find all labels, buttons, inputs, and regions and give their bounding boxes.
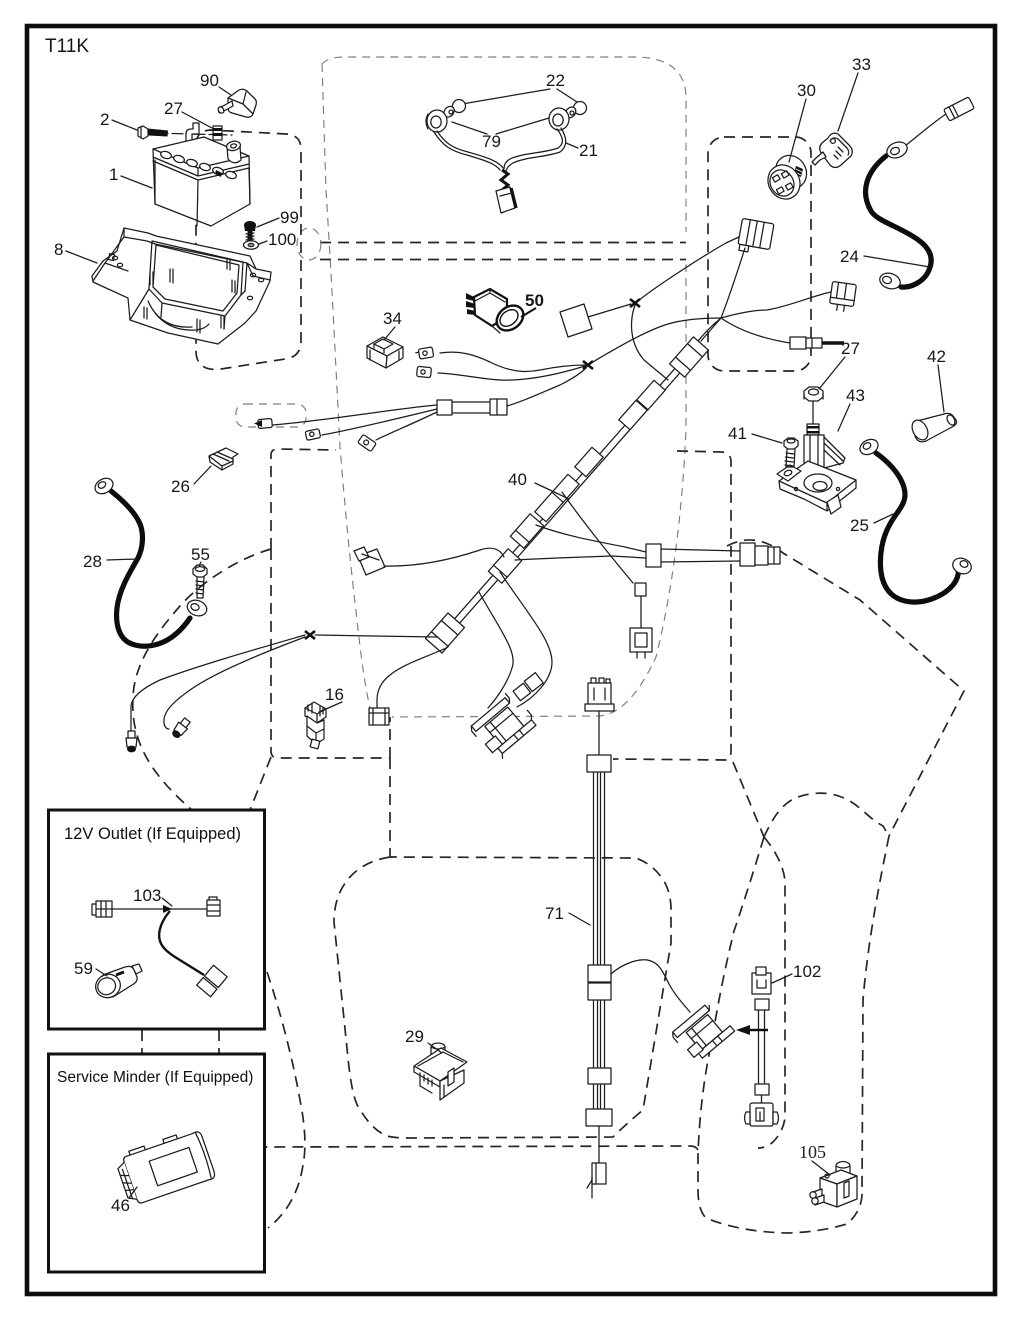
svg-text:8: 8 [54, 240, 63, 259]
svg-text:42: 42 [927, 347, 946, 366]
svg-text:90: 90 [200, 71, 219, 90]
svg-text:102: 102 [793, 962, 821, 981]
svg-text:24: 24 [840, 247, 859, 266]
svg-text:22: 22 [546, 71, 565, 90]
svg-text:34: 34 [383, 309, 402, 328]
svg-text:28: 28 [83, 552, 102, 571]
svg-text:99: 99 [280, 208, 299, 227]
svg-text:25: 25 [850, 516, 869, 535]
svg-text:27: 27 [164, 99, 183, 118]
svg-text:105: 105 [799, 1142, 826, 1162]
svg-text:79: 79 [482, 132, 501, 151]
svg-text:71: 71 [545, 904, 564, 923]
svg-text:59: 59 [74, 959, 93, 978]
svg-text:55: 55 [191, 545, 210, 564]
svg-text:T11K: T11K [45, 36, 89, 57]
svg-text:30: 30 [797, 81, 816, 100]
svg-text:41: 41 [728, 424, 747, 443]
svg-text:46: 46 [111, 1196, 130, 1215]
svg-text:2: 2 [100, 110, 109, 129]
svg-text:16: 16 [325, 685, 344, 704]
svg-text:33: 33 [852, 55, 871, 74]
svg-text:21: 21 [579, 141, 598, 160]
svg-text:103: 103 [133, 886, 161, 905]
svg-text:26: 26 [171, 477, 190, 496]
svg-text:12V Outlet (If Equipped): 12V Outlet (If Equipped) [64, 825, 241, 843]
svg-text:40: 40 [508, 470, 527, 489]
svg-text:50: 50 [525, 291, 544, 310]
svg-text:43: 43 [846, 386, 865, 405]
svg-text:100: 100 [268, 230, 296, 249]
svg-text:29: 29 [405, 1027, 424, 1046]
svg-text:1: 1 [109, 165, 118, 184]
svg-text:Service Minder (If Equipped): Service Minder (If Equipped) [57, 1069, 253, 1086]
